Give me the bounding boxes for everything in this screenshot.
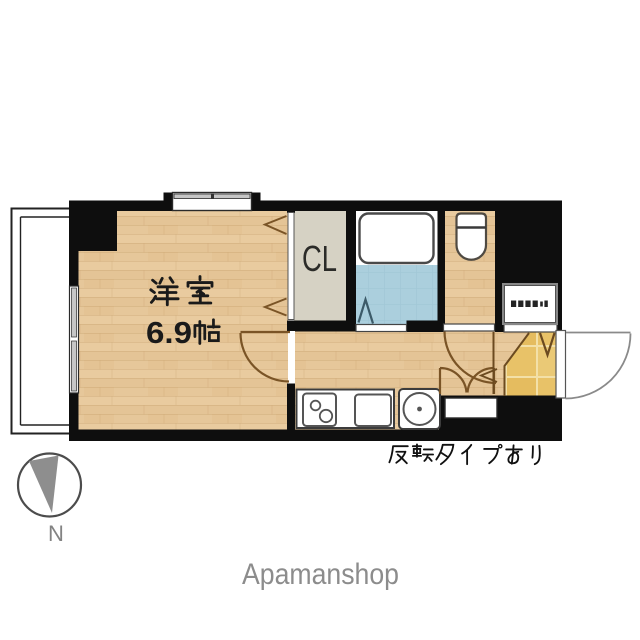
svg-text:6.9: 6.9 <box>146 315 192 350</box>
svg-text:Apamanshop: Apamanshop <box>242 558 399 591</box>
svg-text:CL: CL <box>302 238 337 279</box>
svg-text:N: N <box>48 521 64 546</box>
